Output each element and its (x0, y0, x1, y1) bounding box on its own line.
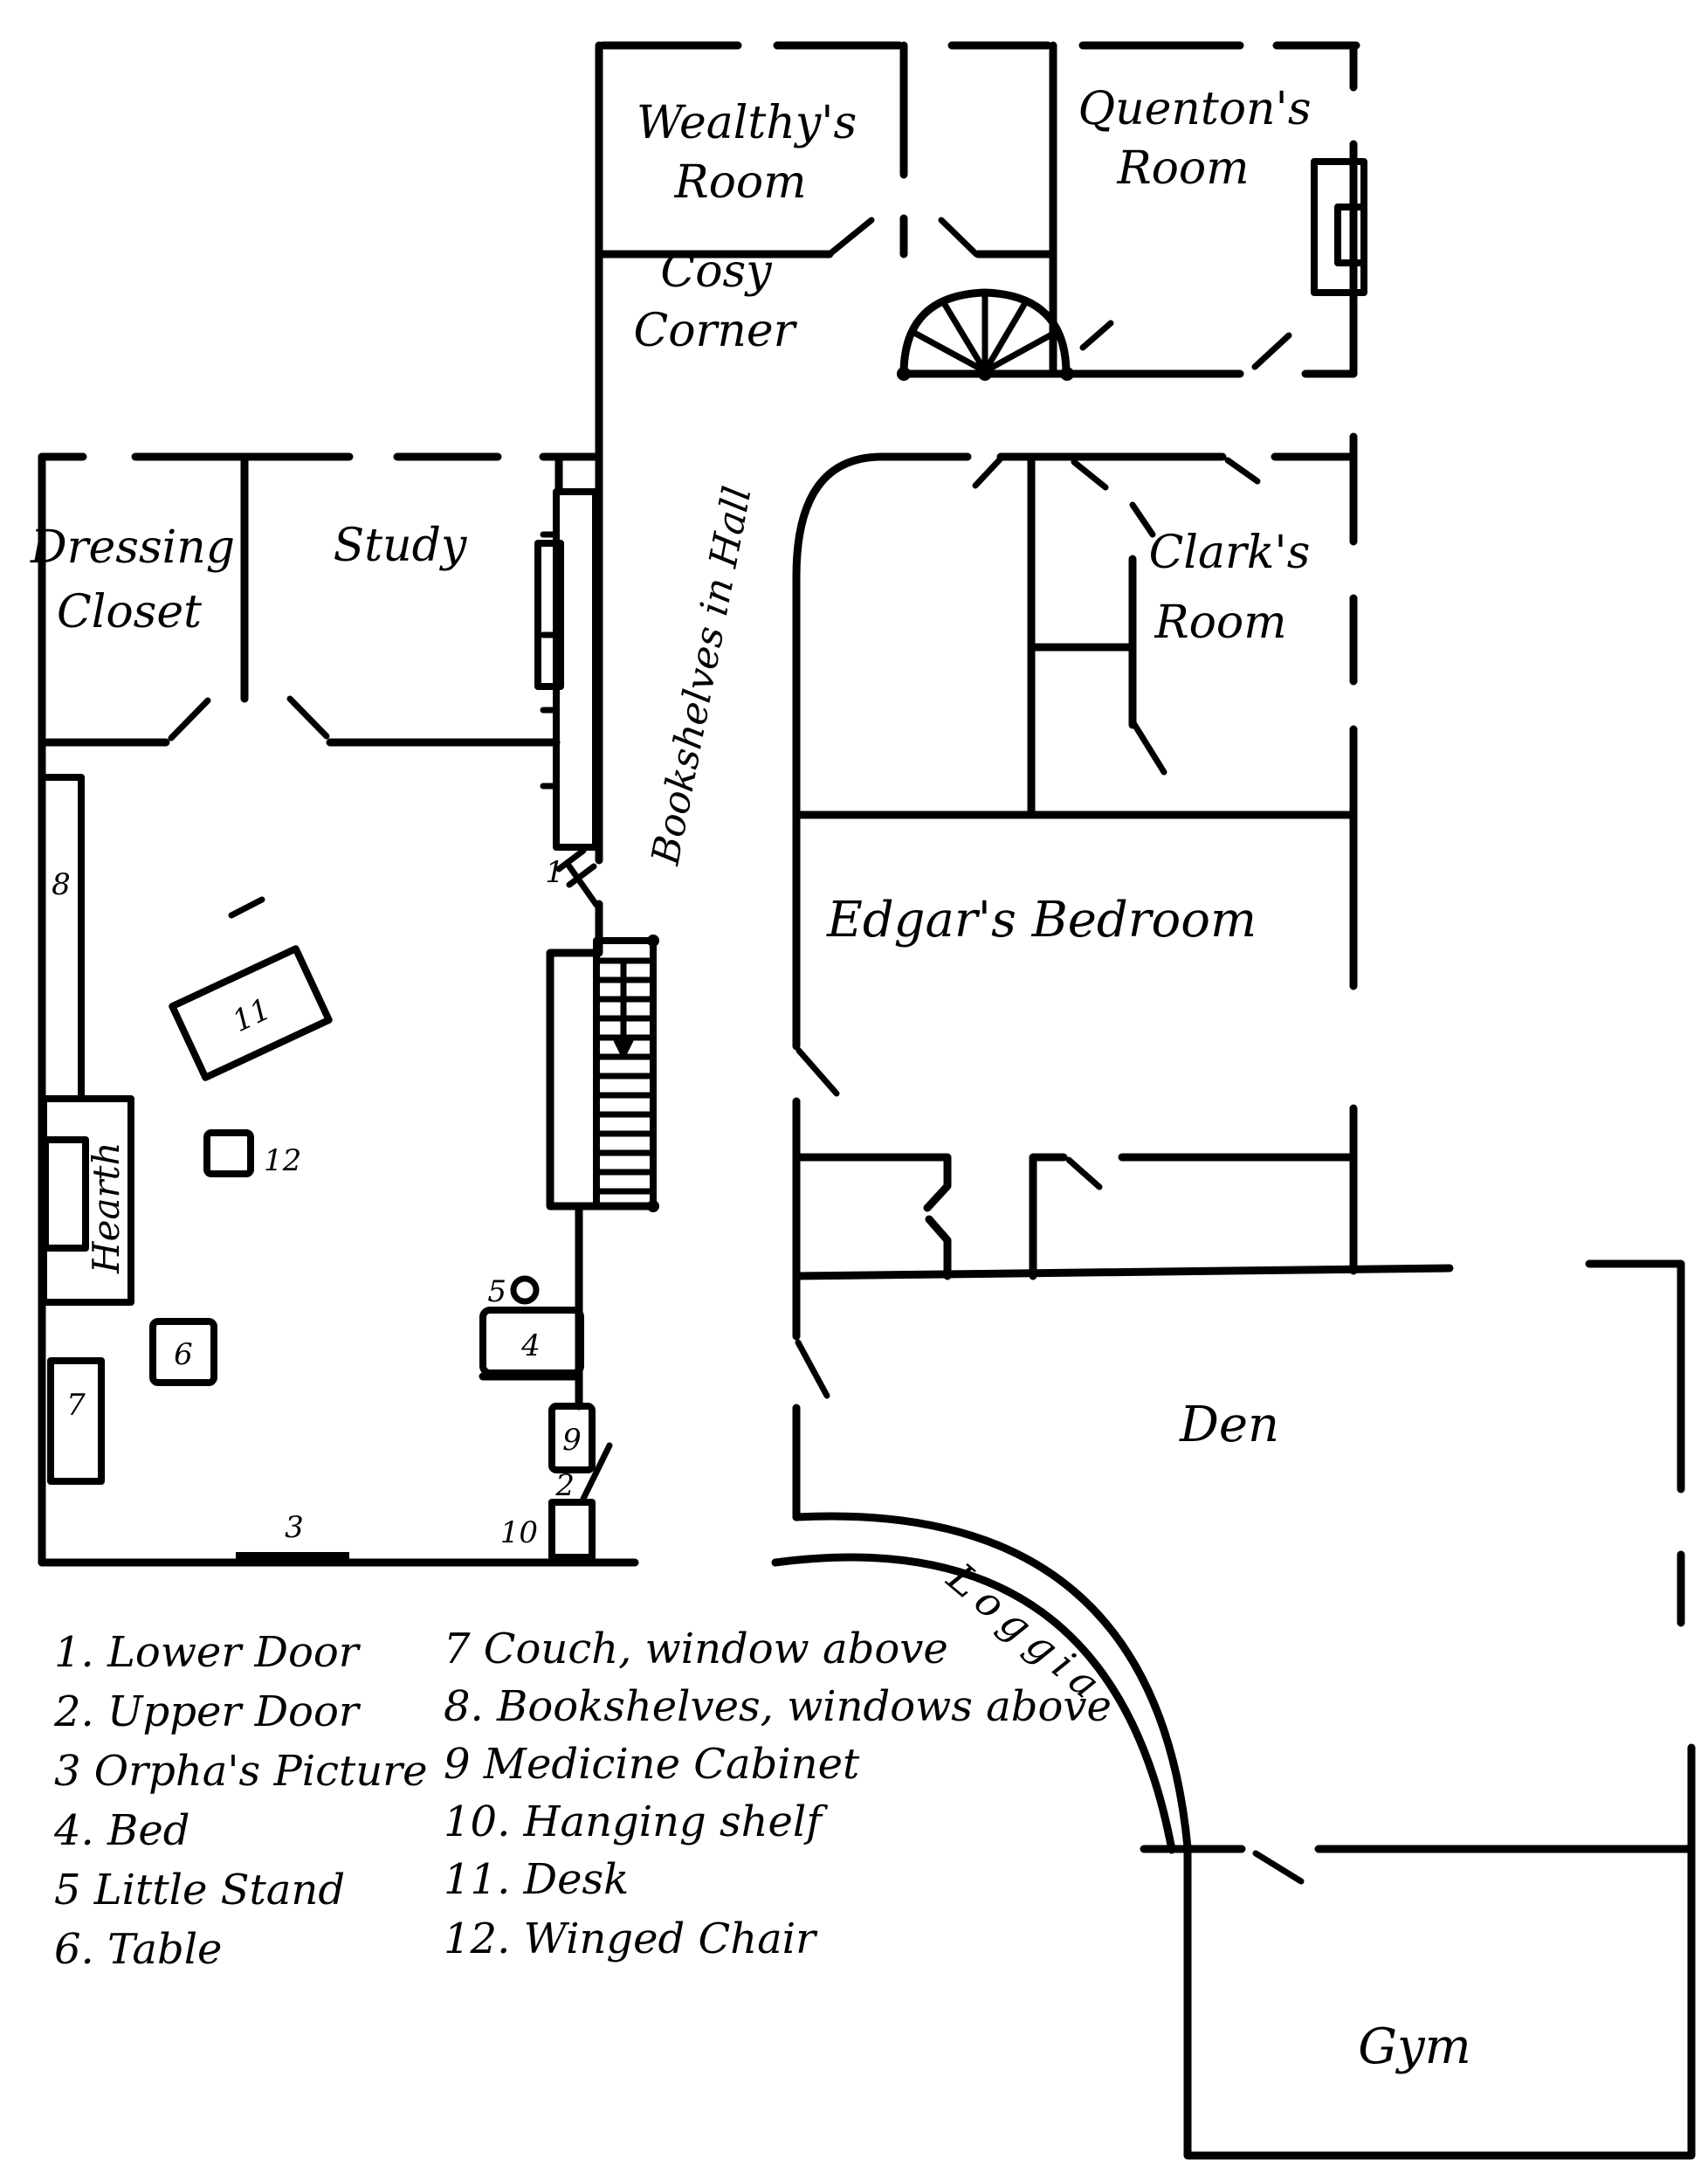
floor-plan-svg: 11 Wealthy's Room Quenton's Room Cosy Co… (0, 0, 1708, 2180)
legend-item-1: 1. Lower Door (54, 1628, 362, 1677)
door-quenton (1083, 323, 1111, 348)
marker-5: 5 (487, 1274, 506, 1309)
door-closet-a (1074, 462, 1105, 487)
marker-8: 8 (52, 867, 71, 902)
marker-12: 12 (264, 1143, 301, 1178)
label-gym: Gym (1358, 2018, 1470, 2075)
legend-item-6: 6. Table (54, 1925, 222, 1974)
wall-gym (1144, 1748, 1691, 2156)
door-corridor-east (1228, 460, 1257, 481)
label-clarks-2: Room (1154, 597, 1286, 649)
marker-9: 9 (562, 1423, 582, 1458)
wall-edgar-bottom (796, 1268, 1450, 1276)
walls (42, 45, 1691, 2156)
spiral-stair (897, 293, 1074, 381)
label-edgars-bedroom: Edgar's Bedroom (826, 892, 1257, 949)
legend-item-12: 12. Winged Chair (444, 1914, 818, 1963)
door-study-leaf (290, 699, 327, 736)
door-upperhall (975, 459, 1001, 486)
study-window (538, 543, 561, 686)
label-hearth: Hearth (85, 1142, 127, 1274)
desk-11-tick (231, 900, 262, 915)
spiral-stair-dot-right (1060, 367, 1074, 381)
marker-7: 7 (66, 1388, 86, 1423)
label-dressing-2: Closet (57, 586, 202, 638)
wall-den-east (1589, 1264, 1681, 1623)
legend: 1. Lower Door 2. Upper Door 3 Orpha's Pi… (53, 1625, 1112, 1974)
marker-3: 3 (285, 1510, 304, 1545)
spiral-stair-dot-left (897, 367, 911, 381)
label-clarks-1: Clark's (1149, 527, 1311, 579)
legend-item-4: 4. Bed (53, 1806, 189, 1855)
label-quentons-2: Room (1116, 142, 1249, 195)
winged-chair-12 (207, 1133, 251, 1174)
door-wealthy-right-leaf (941, 220, 976, 254)
label-wealthys-2: Room (673, 156, 806, 209)
wall-edgar-nook (796, 1157, 947, 1276)
marker-11: 11 (227, 991, 276, 1039)
floor-plan: 11 Wealthy's Room Quenton's Room Cosy Co… (0, 0, 1708, 2180)
staircase (596, 935, 659, 1212)
door-clark-top (1255, 335, 1289, 367)
label-hall-bookshelves: Bookshelves in Hall (644, 483, 761, 869)
spiral-stair-dot-center (978, 367, 992, 381)
bookshelves-8 (42, 777, 81, 1099)
marker-4: 4 (520, 1328, 541, 1363)
label-cosy-1: Cosy (660, 245, 772, 298)
hanging-shelf-10 (552, 1502, 592, 1557)
door-wealthy-left-leaf (830, 220, 871, 254)
hall-bookshelf-hatch (559, 851, 594, 885)
label-quentons-1: Quenton's (1078, 83, 1311, 135)
legend-item-11: 11. Desk (444, 1855, 629, 1904)
door-clark-lower (1133, 721, 1164, 772)
marker-10: 10 (500, 1515, 538, 1550)
door-den-west (798, 1342, 827, 1396)
legend-item-3: 3 Orpha's Picture (54, 1747, 428, 1796)
wall-edgar-closet-strip (1033, 1157, 1353, 1276)
little-stand-5 (513, 1279, 536, 1301)
door-gym (1256, 1853, 1301, 1881)
legend-item-2: 2. Upper Door (53, 1687, 362, 1736)
legend-item-8: 8. Bookshelves, windows above (444, 1682, 1112, 1731)
label-den: Den (1179, 1397, 1279, 1453)
hearth-firebox (45, 1140, 86, 1248)
staircase-dot-top (647, 935, 659, 947)
marker-2: 2 (554, 1468, 575, 1503)
door-dressing-leaf (171, 700, 208, 738)
legend-item-5: 5 Little Stand (54, 1866, 345, 1914)
door-edgar-closet (1069, 1160, 1099, 1187)
label-cosy-2: Corner (633, 305, 797, 357)
label-dressing-1: Dressing (30, 521, 235, 574)
legend-item-9: 9 Medicine Cabinet (444, 1740, 860, 1789)
door-edgar-west (799, 1051, 837, 1093)
label-study: Study (334, 520, 467, 572)
label-wealthys-1: Wealthy's (637, 97, 857, 149)
marker-1: 1 (545, 855, 564, 890)
desk-11: 11 (172, 949, 328, 1077)
marker-6: 6 (174, 1337, 193, 1372)
legend-item-7: 7 Couch, window above (444, 1625, 948, 1673)
wall-clark-closets (1031, 460, 1133, 815)
legend-item-10: 10. Hanging shelf (444, 1797, 828, 1846)
staircase-dot-bottom (647, 1200, 659, 1212)
staircase-down-arrow (616, 962, 630, 1054)
